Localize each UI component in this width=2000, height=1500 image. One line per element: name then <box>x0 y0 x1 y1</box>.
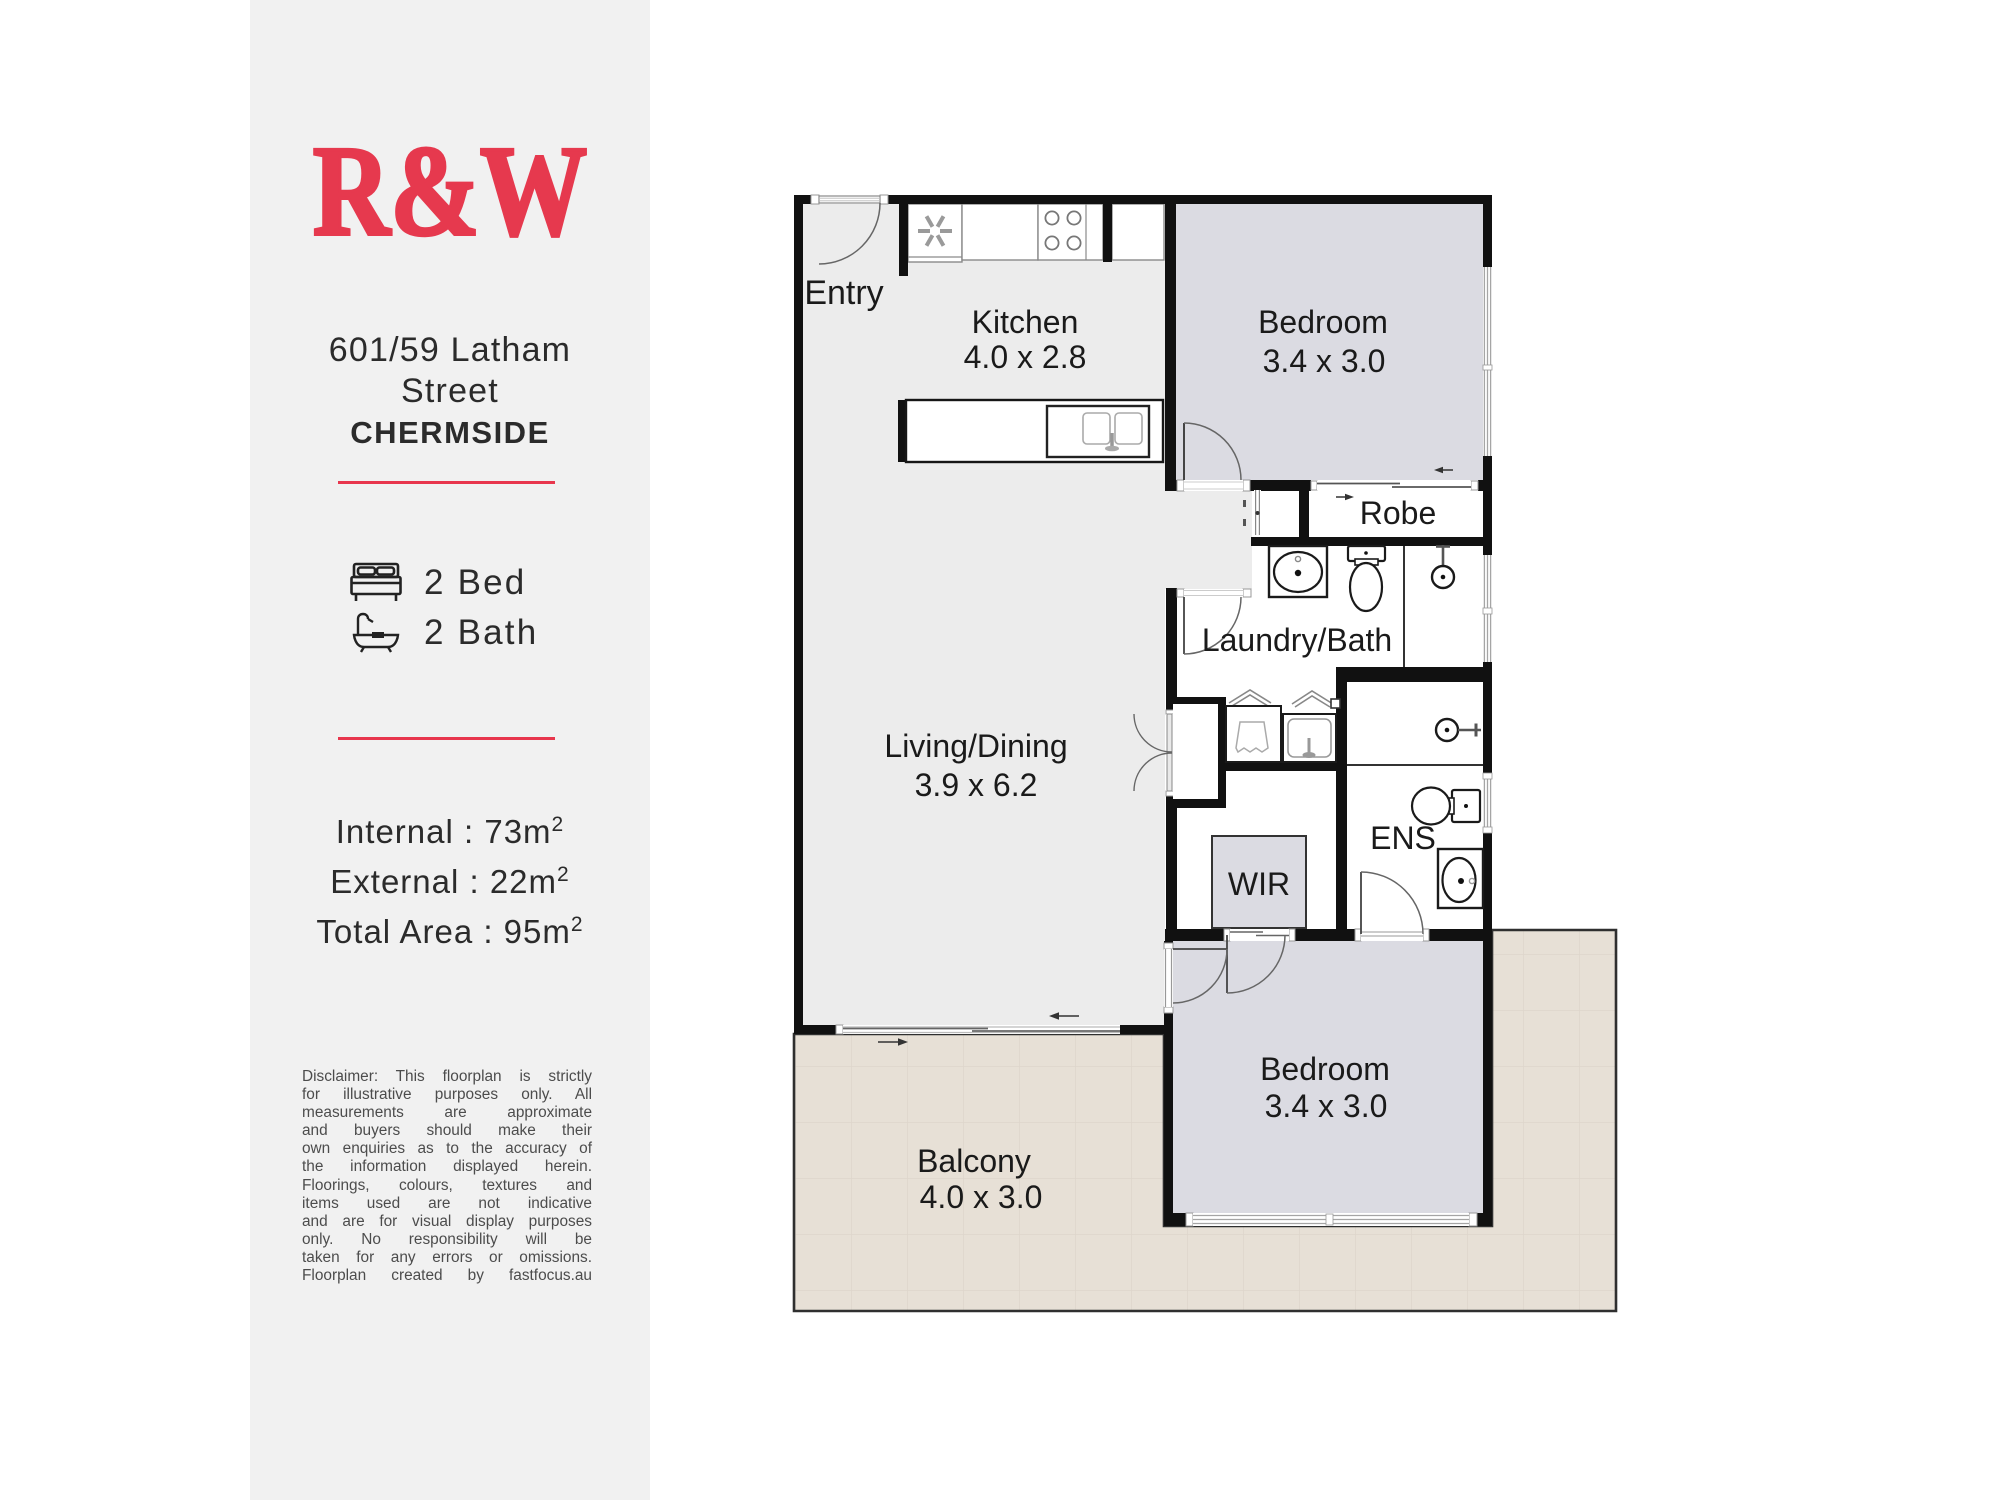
svg-text:3.4 x 3.0: 3.4 x 3.0 <box>1263 343 1386 379</box>
svg-text:WIR: WIR <box>1228 866 1290 902</box>
svg-text:Bedroom: Bedroom <box>1260 1051 1390 1087</box>
svg-text:4.0 x 3.0: 4.0 x 3.0 <box>920 1179 1043 1215</box>
svg-text:Laundry/Bath: Laundry/Bath <box>1202 622 1392 658</box>
svg-text:Robe: Robe <box>1360 495 1437 531</box>
svg-text:4.0 x 2.8: 4.0 x 2.8 <box>964 339 1087 375</box>
svg-text:Entry: Entry <box>804 274 883 312</box>
svg-text:ENS: ENS <box>1370 820 1436 856</box>
svg-text:Balcony: Balcony <box>917 1143 1031 1179</box>
svg-text:3.4 x 3.0: 3.4 x 3.0 <box>1265 1088 1388 1124</box>
svg-text:3.9 x 6.2: 3.9 x 6.2 <box>915 767 1038 803</box>
svg-text:Bedroom: Bedroom <box>1258 304 1388 340</box>
svg-text:Living/Dining: Living/Dining <box>884 728 1067 764</box>
svg-text:Kitchen: Kitchen <box>972 304 1079 340</box>
